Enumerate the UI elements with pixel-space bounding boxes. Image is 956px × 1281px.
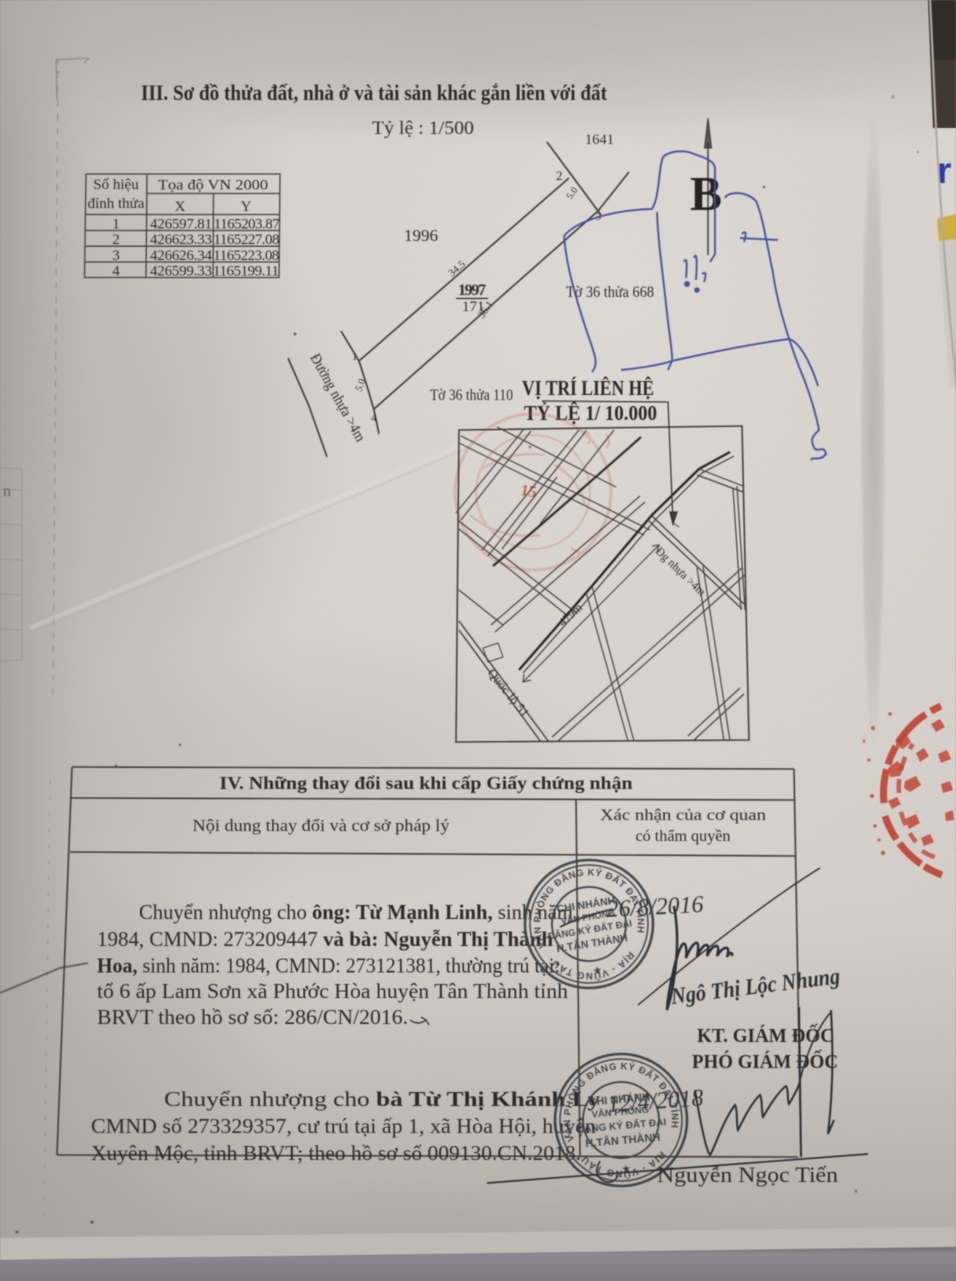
- svg-text:Y: Y: [241, 199, 252, 215]
- svg-text:426623.33: 426623.33: [150, 232, 212, 248]
- svg-text:1: 1: [112, 217, 120, 233]
- svg-text:TỶ LỆ 1/ 10.000: TỶ LỆ 1/ 10.000: [524, 401, 657, 425]
- svg-text:Chuyển nhượng cho bà Từ T: Chuyển nhượng cho bà Từ Thị Khánh Ly: [164, 1087, 601, 1111]
- svg-text:đỉnh thửa: đỉnh thửa: [88, 196, 145, 212]
- svg-text:2: 2: [112, 232, 120, 248]
- svg-text:BRVT theo hồ sơ số: 286/CN/201: BRVT theo hồ sơ số: 286/CN/2016.: [97, 1005, 408, 1029]
- svg-text:PHÓ GIÁM ĐỐC: PHÓ GIÁM ĐỐC: [692, 1051, 838, 1073]
- svg-text:1984, CMND: 273209447 và b: 1984, CMND: 273209447 và bà: Nguyễn Thị …: [97, 927, 553, 951]
- svg-text:1165227.08: 1165227.08: [214, 232, 280, 248]
- svg-text:Chuyển nhượng cho ông: Từ Mạnh: Chuyển nhượng cho ông: Từ Mạnh Linh, sin…: [139, 900, 573, 924]
- svg-text:Nội dung thay đổi và cơ sở phá: Nội dung thay đổi và cơ sở pháp lý: [193, 816, 451, 835]
- svg-text:426597.81: 426597.81: [150, 217, 212, 233]
- svg-text:26/8/2016: 26/8/2016: [606, 892, 704, 923]
- svg-text:Tờ 36 thửa 110: Tờ 36 thửa 110: [430, 387, 513, 404]
- svg-text:Tờ 36 thửa 668: Tờ 36 thửa 668: [566, 284, 654, 301]
- svg-text:426599.33: 426599.33: [150, 263, 212, 279]
- svg-text:1997: 1997: [458, 282, 486, 299]
- svg-text:4: 4: [371, 412, 377, 424]
- svg-text:Tọa độ VN 2000: Tọa độ VN 2000: [158, 178, 268, 194]
- svg-text:3: 3: [112, 248, 120, 264]
- svg-text:CMND số 273329357, cư trú tại: CMND số 273329357, cư trú tại ấp 1, xã H…: [91, 1114, 597, 1138]
- svg-text:có thẩm quyền: có thẩm quyền: [636, 828, 731, 845]
- svg-text:Số hiệu: Số hiệu: [93, 177, 139, 193]
- svg-text:426626.34: 426626.34: [150, 248, 213, 264]
- svg-text:tổ 6 ấp Lam Sơn xã Phước Hòa h: tổ 6 ấp Lam Sơn xã Phước Hòa huyện Tân T…: [97, 979, 569, 1003]
- svg-text:IV. Những thay đổi sau khi cấp: IV. Những thay đổi sau khi cấp Giấy chứn…: [220, 773, 633, 793]
- svg-text:2: 2: [556, 168, 563, 183]
- svg-text:Xác nhận của cơ quan: Xác nhận của cơ quan: [600, 807, 766, 824]
- svg-text:1165203.87: 1165203.87: [214, 217, 281, 233]
- svg-text:n: n: [3, 483, 11, 500]
- svg-text:4: 4: [112, 263, 120, 279]
- svg-text:Nguyễn Ngọc Tiến: Nguyễn Ngọc Tiến: [657, 1162, 838, 1187]
- svg-text:Tỷ lệ : 1/500: Tỷ lệ : 1/500: [372, 118, 474, 139]
- svg-text:III. Sơ đồ thửa đất, nhà ở và: III. Sơ đồ thửa đất, nhà ở và tài sản kh…: [141, 80, 608, 105]
- svg-text:1: 1: [352, 351, 358, 363]
- svg-text:1996: 1996: [404, 226, 438, 245]
- svg-text:VỊ TRÍ LIÊN HỆ: VỊ TRÍ LIÊN HỆ: [522, 376, 654, 400]
- svg-text:Hoa, sinh năm: 1984, CMND: 273: Hoa, sinh năm: 1984, CMND: 273121381, th…: [97, 954, 560, 978]
- svg-text:X: X: [175, 199, 186, 215]
- svg-text:Xuyên Mộc, tỉnh BRVT; theo hồ: Xuyên Mộc, tỉnh BRVT; theo hồ sơ số 0091…: [91, 1141, 581, 1165]
- svg-text:B: B: [690, 166, 722, 221]
- svg-text:1165199.11: 1165199.11: [213, 263, 279, 279]
- svg-text:1641: 1641: [585, 132, 614, 148]
- svg-text:1165223.08: 1165223.08: [213, 248, 279, 264]
- svg-text:KT. GIÁM ĐỐC: KT. GIÁM ĐỐC: [697, 1025, 834, 1047]
